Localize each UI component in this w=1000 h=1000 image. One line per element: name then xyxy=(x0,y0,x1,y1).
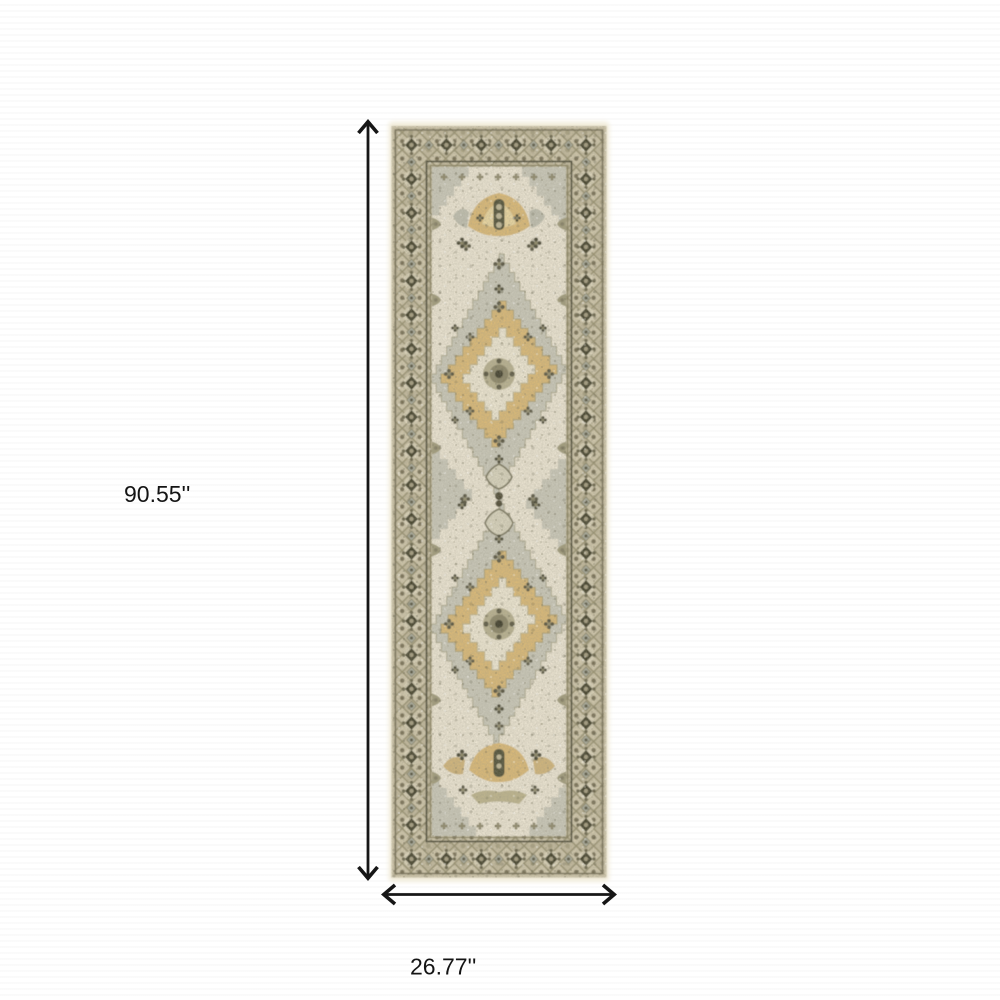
svg-text:26.77'': 26.77'' xyxy=(410,954,476,980)
svg-text:90.55'': 90.55'' xyxy=(124,481,190,507)
